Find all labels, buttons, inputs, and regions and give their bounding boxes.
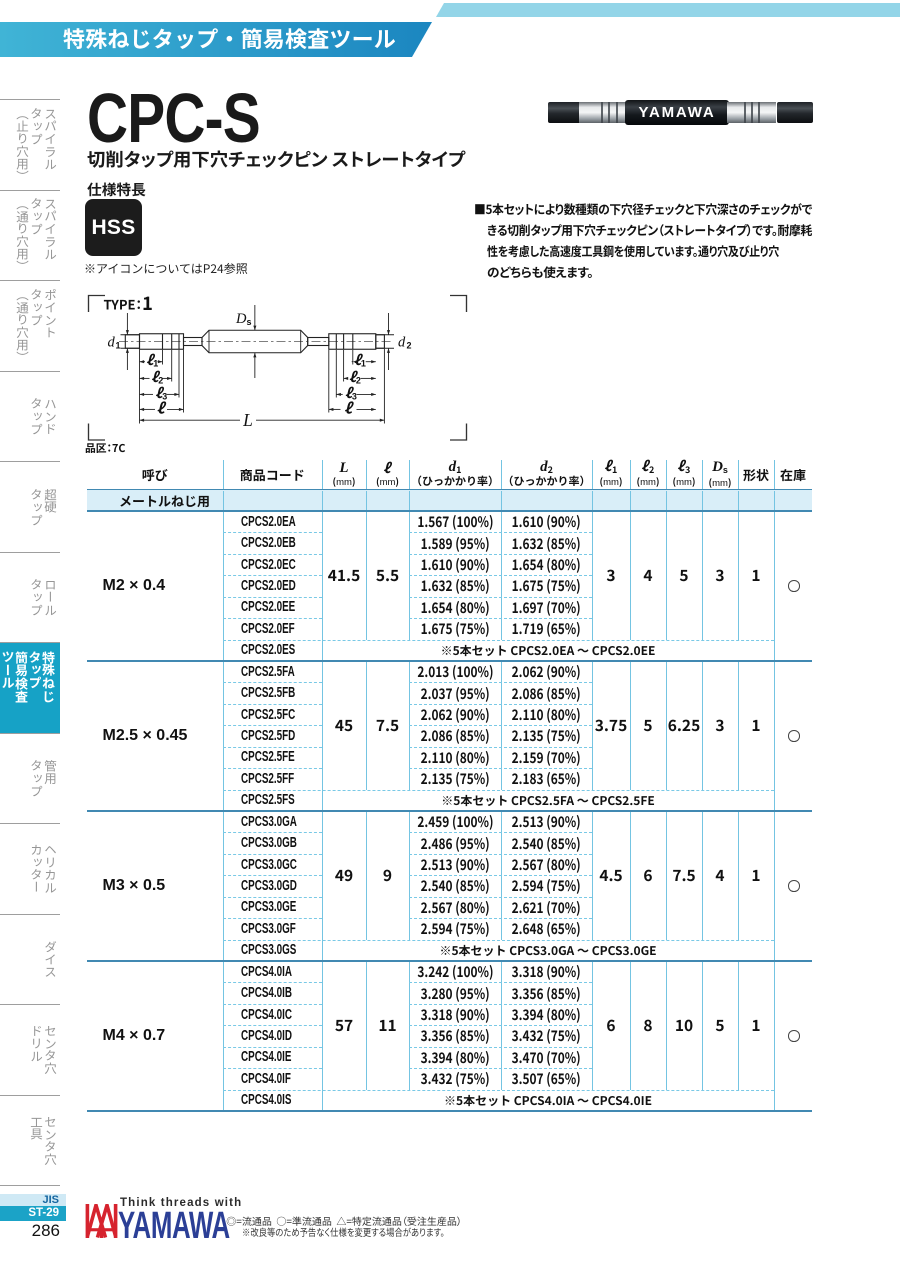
svg-text:1: 1 [116,341,121,351]
svg-text:2: 2 [356,375,361,385]
svg-text:d: d [398,335,406,351]
svg-text:D: D [235,311,247,327]
svg-text:s: s [247,317,252,327]
svg-text:1: 1 [361,359,366,369]
svg-text:d: d [108,335,116,351]
svg-text:YAMAWA: YAMAWA [639,104,716,121]
svg-text:L: L [242,410,253,430]
svg-text:2: 2 [407,341,412,351]
